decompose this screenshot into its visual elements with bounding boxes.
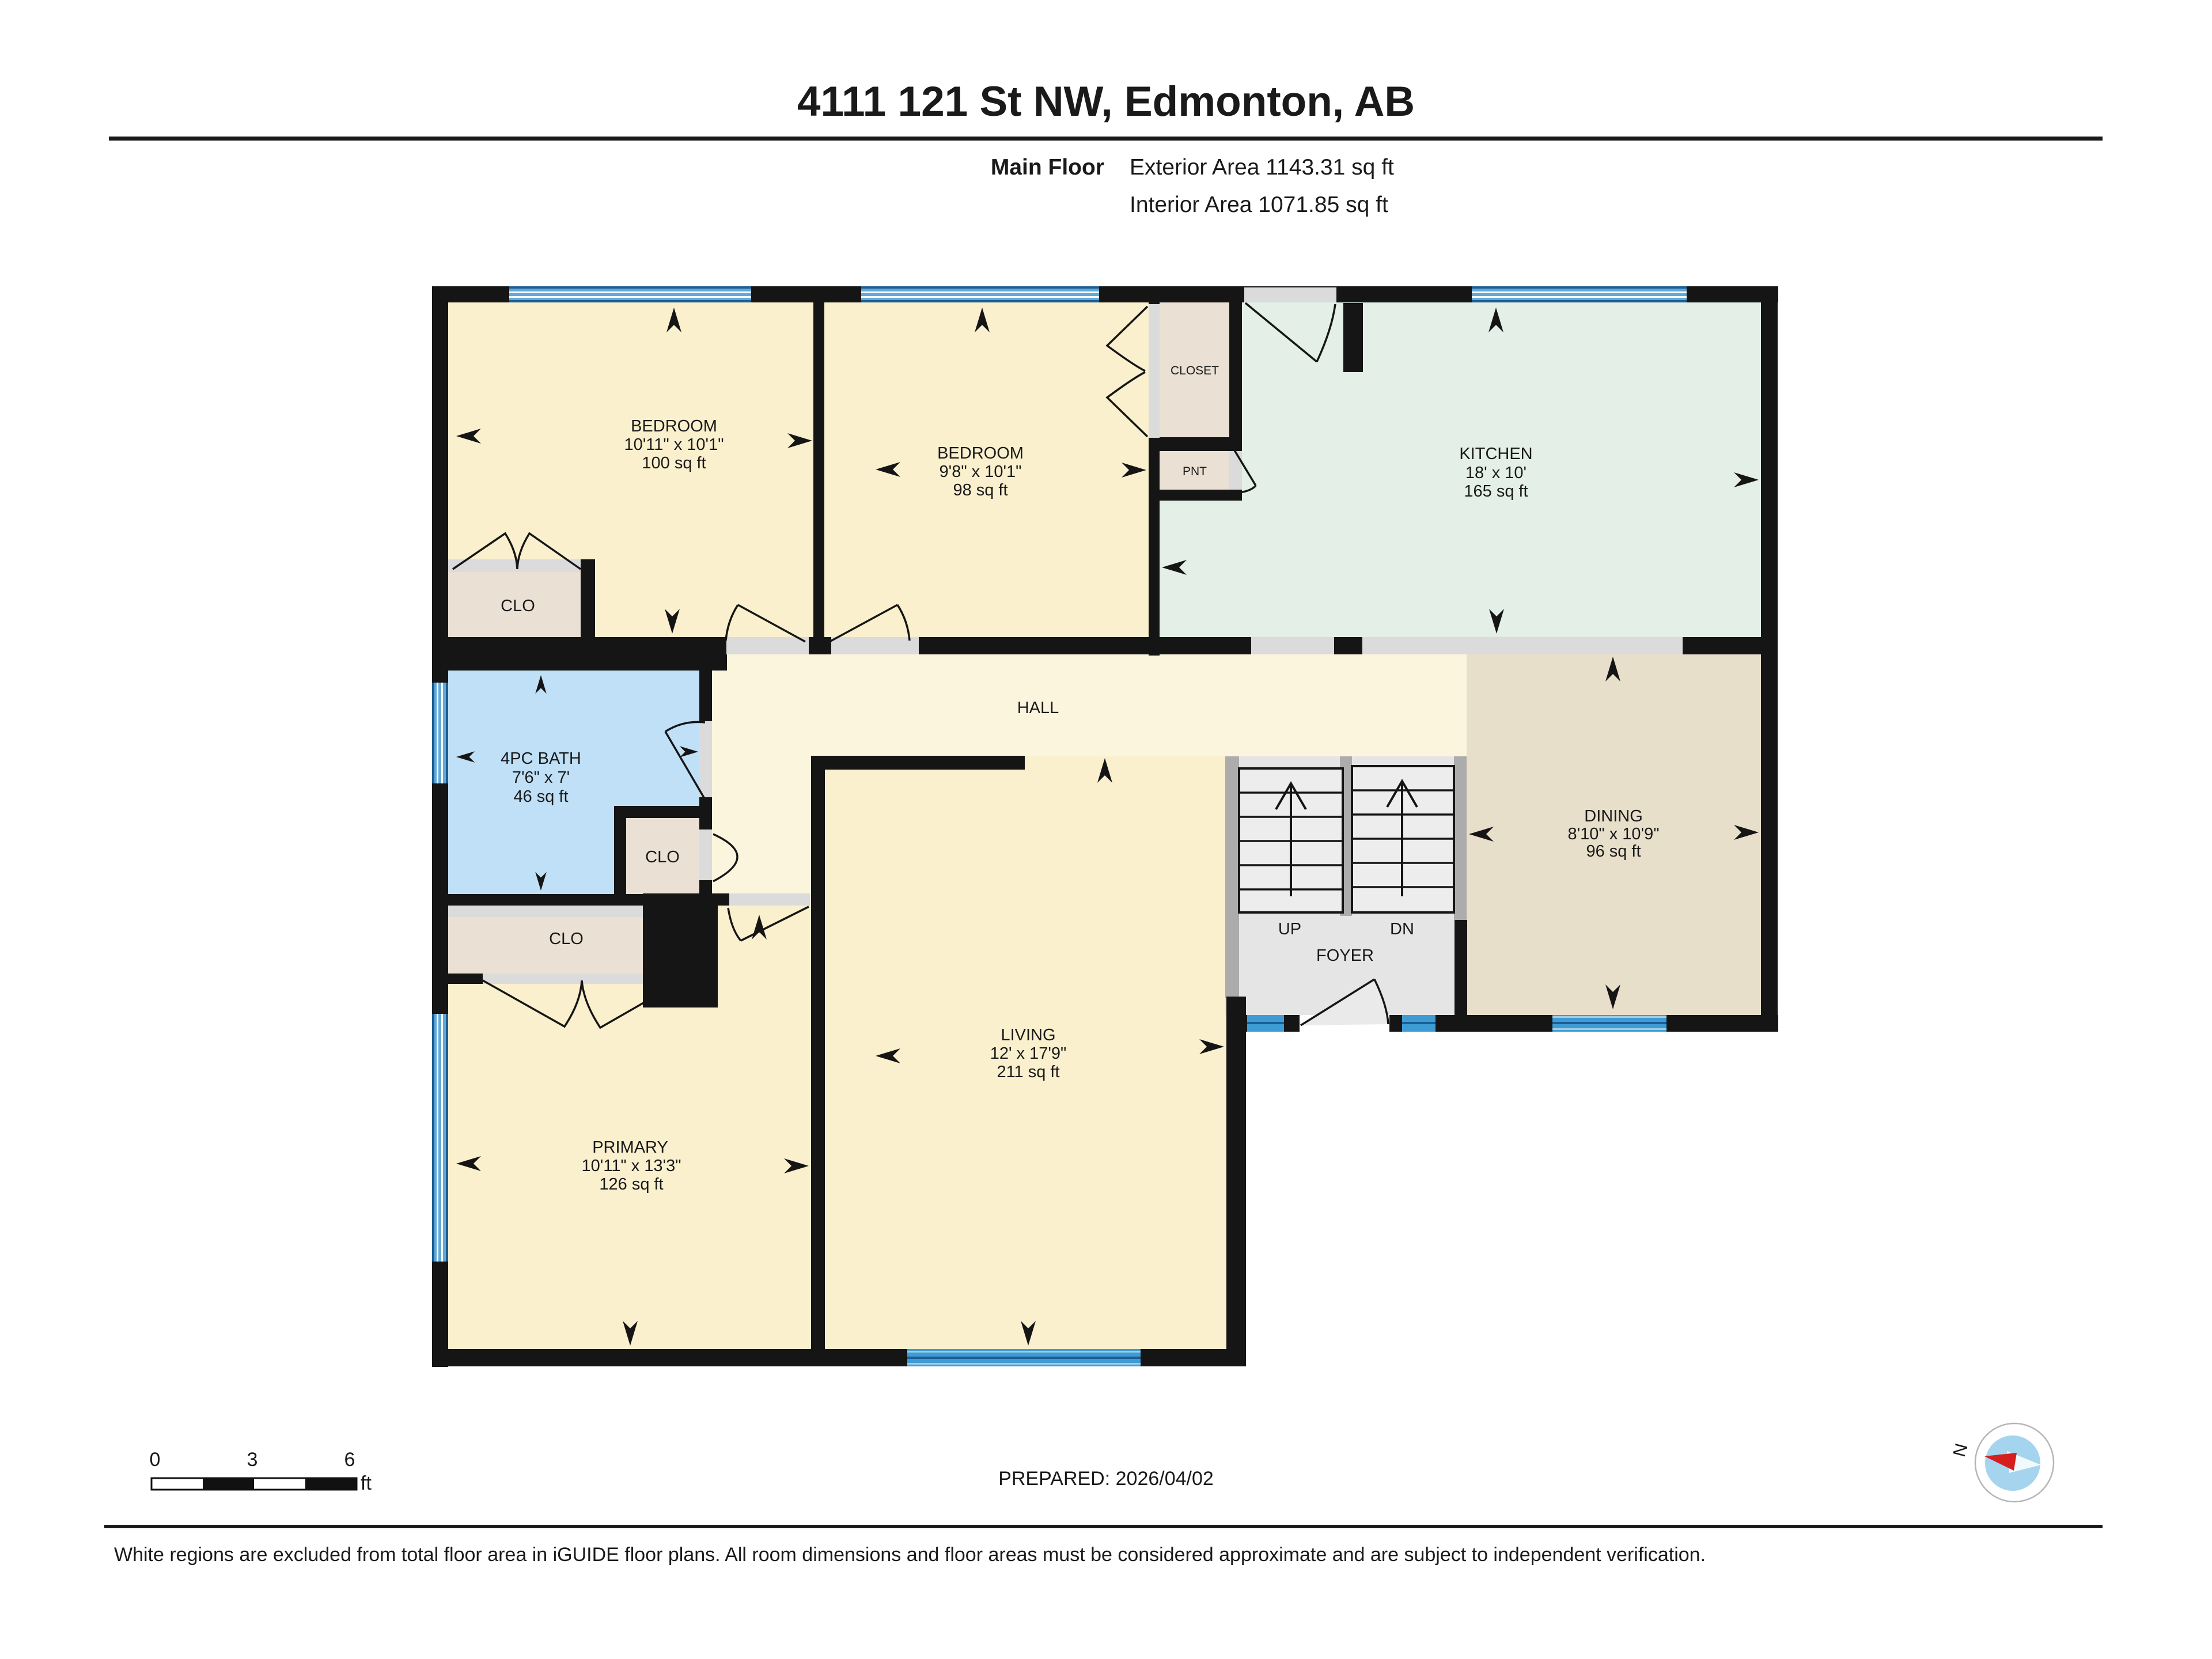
svg-text:4111 121 St NW, Edmonton, AB: 4111 121 St NW, Edmonton, AB bbox=[797, 78, 1415, 125]
svg-text:6: 6 bbox=[344, 1449, 355, 1471]
svg-text:9'8" x 10'1": 9'8" x 10'1" bbox=[940, 463, 1022, 481]
svg-text:18' x 10': 18' x 10' bbox=[1465, 464, 1527, 482]
svg-text:10'11" x 10'1": 10'11" x 10'1" bbox=[624, 435, 724, 454]
svg-text:211 sq ft: 211 sq ft bbox=[997, 1063, 1059, 1081]
svg-text:46 sq ft: 46 sq ft bbox=[513, 787, 568, 806]
svg-text:PREPARED: 2026/04/02: PREPARED: 2026/04/02 bbox=[998, 1468, 1214, 1490]
svg-text:LIVING: LIVING bbox=[1001, 1026, 1055, 1044]
svg-text:PRIMARY: PRIMARY bbox=[592, 1138, 668, 1157]
svg-text:Main Floor: Main Floor bbox=[991, 155, 1104, 180]
svg-text:N: N bbox=[1949, 1441, 1972, 1459]
svg-text:ft: ft bbox=[361, 1472, 372, 1494]
svg-text:CLO: CLO bbox=[501, 597, 535, 615]
svg-text:Exterior Area 1143.31 sq ft: Exterior Area 1143.31 sq ft bbox=[1130, 155, 1394, 180]
svg-text:HALL: HALL bbox=[1017, 699, 1059, 717]
svg-text:0: 0 bbox=[150, 1449, 161, 1471]
svg-text:White regions are excluded fro: White regions are excluded from total fl… bbox=[114, 1544, 1706, 1566]
svg-text:DINING: DINING bbox=[1584, 807, 1643, 825]
svg-text:3: 3 bbox=[247, 1449, 258, 1471]
svg-text:UP: UP bbox=[1278, 920, 1301, 938]
svg-text:126 sq ft: 126 sq ft bbox=[599, 1175, 663, 1194]
svg-text:8'10" x 10'9": 8'10" x 10'9" bbox=[1567, 825, 1659, 843]
svg-text:10'11" x 13'3": 10'11" x 13'3" bbox=[581, 1157, 681, 1175]
svg-text:4PC BATH: 4PC BATH bbox=[501, 749, 581, 768]
svg-text:PNT: PNT bbox=[1183, 465, 1207, 478]
svg-text:12' x 17'9": 12' x 17'9" bbox=[990, 1044, 1067, 1063]
svg-text:BEDROOM: BEDROOM bbox=[631, 417, 717, 435]
svg-text:7'6" x 7': 7'6" x 7' bbox=[512, 768, 570, 787]
svg-text:CLO: CLO bbox=[549, 930, 584, 948]
svg-text:98 sq ft: 98 sq ft bbox=[953, 481, 1007, 499]
svg-text:CLOSET: CLOSET bbox=[1171, 364, 1219, 377]
svg-text:96 sq ft: 96 sq ft bbox=[1586, 842, 1641, 861]
svg-text:Interior Area 1071.85 sq ft: Interior Area 1071.85 sq ft bbox=[1130, 192, 1388, 217]
svg-text:FOYER: FOYER bbox=[1316, 946, 1374, 965]
svg-text:BEDROOM: BEDROOM bbox=[937, 444, 1024, 463]
svg-text:165 sq ft: 165 sq ft bbox=[1464, 482, 1528, 501]
svg-text:CLO: CLO bbox=[645, 848, 680, 866]
svg-text:KITCHEN: KITCHEN bbox=[1459, 445, 1532, 463]
svg-text:100 sq ft: 100 sq ft bbox=[642, 454, 706, 472]
svg-text:DN: DN bbox=[1390, 920, 1414, 938]
